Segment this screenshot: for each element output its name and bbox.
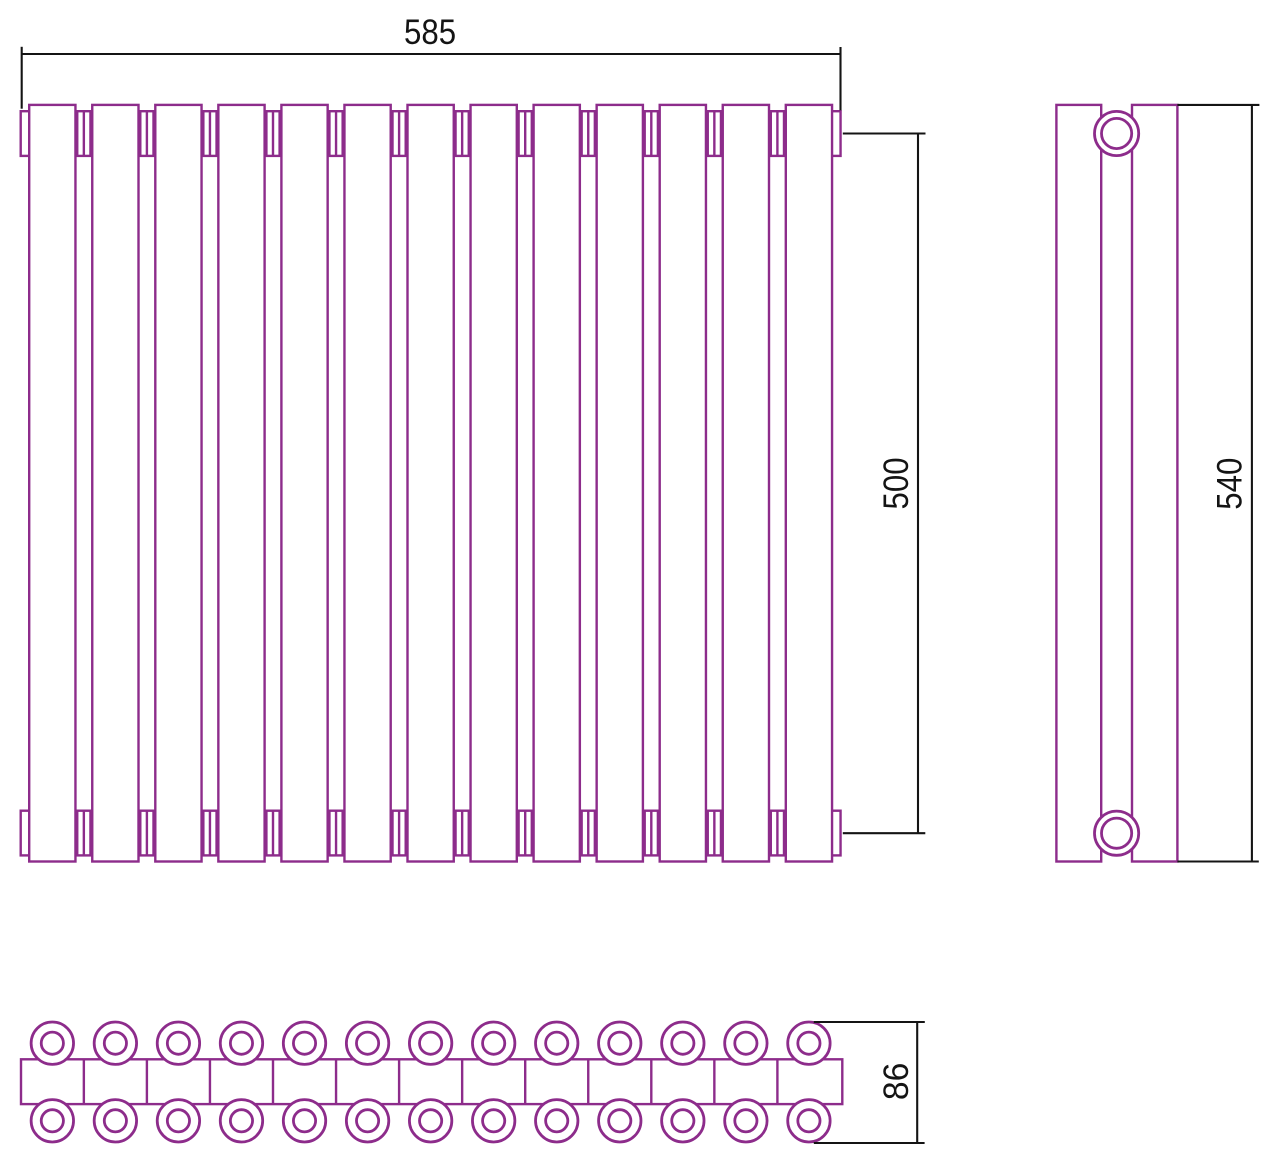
svg-text:540: 540	[1211, 458, 1250, 510]
svg-text:585: 585	[404, 13, 456, 52]
svg-text:500: 500	[877, 457, 916, 509]
svg-text:86: 86	[877, 1063, 916, 1101]
